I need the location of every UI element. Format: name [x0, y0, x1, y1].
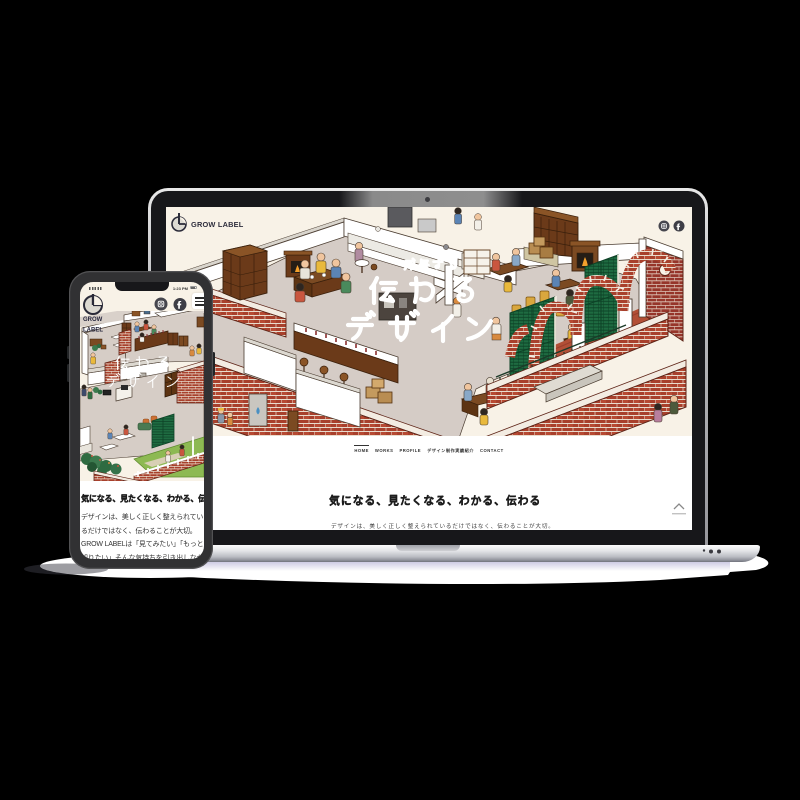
svg-text:GROW: GROW: [83, 317, 103, 323]
svg-text:GROW LABEL: GROW LABEL: [191, 220, 244, 229]
svg-text:LABEL: LABEL: [83, 328, 103, 334]
